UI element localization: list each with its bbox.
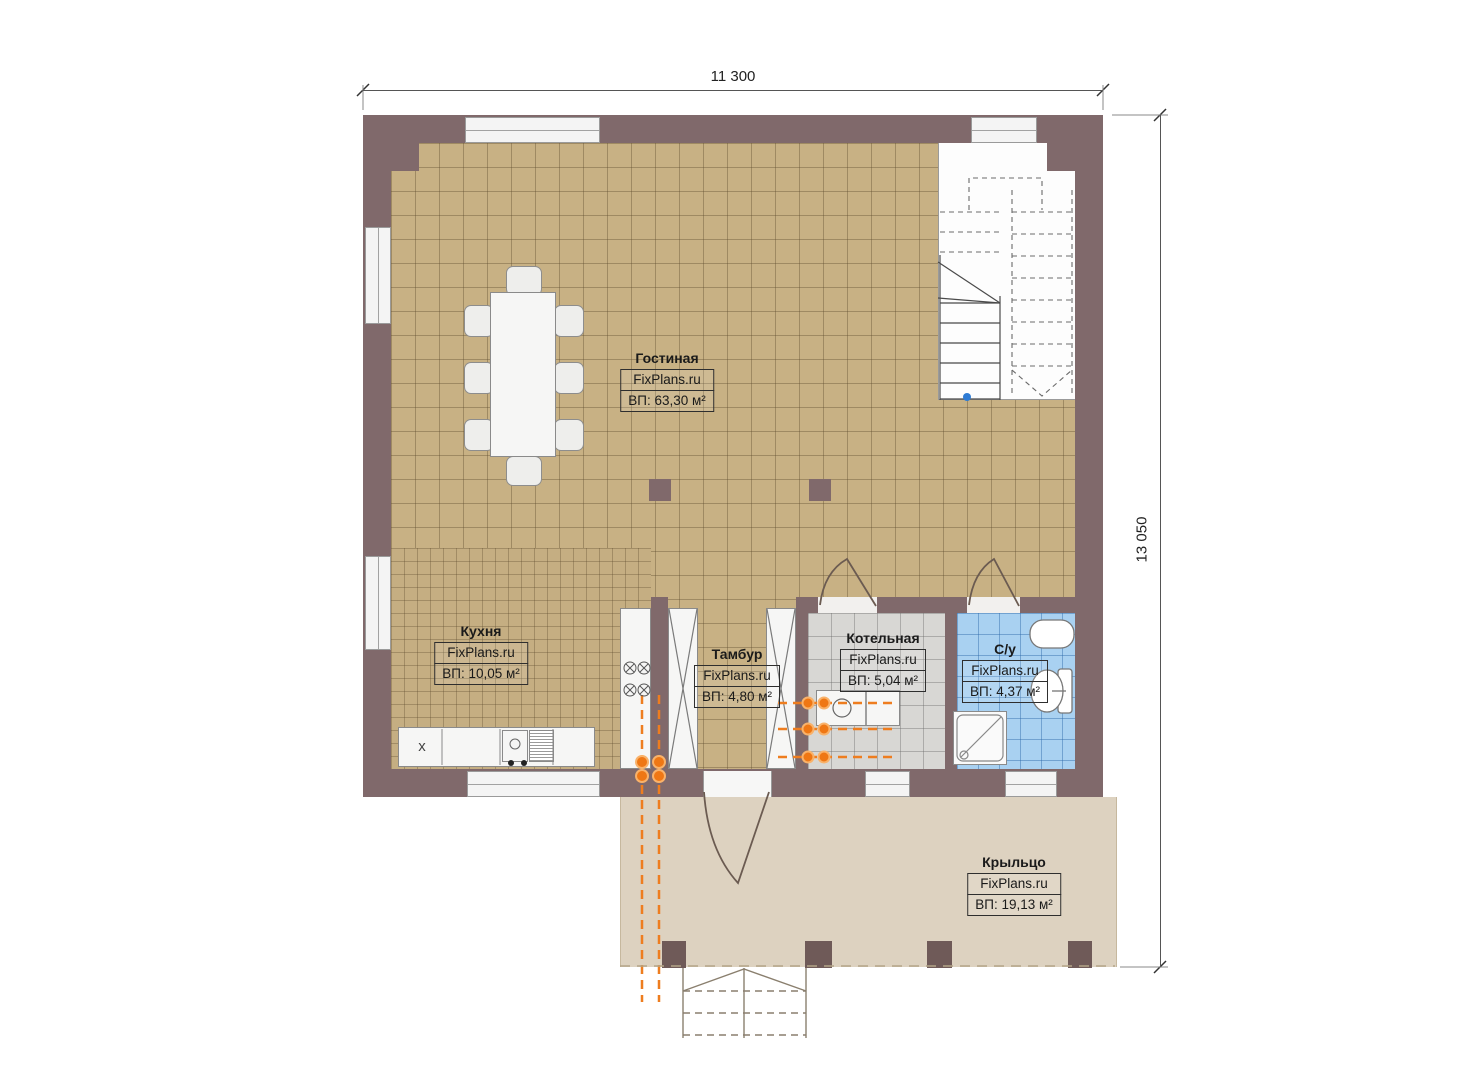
room-name: Котельная: [840, 630, 926, 646]
room-name: Тамбур: [694, 646, 780, 662]
window-top-living: [465, 117, 600, 143]
exterior-wall-right: [1075, 115, 1103, 797]
watermark-label: FixPlans.ru: [967, 873, 1061, 895]
room-info-box: FixPlans.ru ВП: 4,37 м²: [962, 660, 1048, 703]
kitchen-sink-cabinet: [502, 730, 528, 762]
dimension-width-label: 11 300: [363, 68, 1103, 85]
room-name: Кухня: [434, 623, 528, 639]
window-bottom-boiler: [865, 771, 910, 797]
room-name: Гостиная: [620, 350, 714, 366]
room-area-label: ВП: 10,05 м²: [434, 663, 528, 685]
watermark-label: FixPlans.ru: [434, 642, 528, 664]
staircase-area: [938, 143, 1075, 400]
watermark-label: FixPlans.ru: [840, 649, 926, 671]
porch-column: [805, 941, 832, 968]
window-bottom-bathroom: [1005, 771, 1057, 797]
watermark-label: FixPlans.ru: [694, 665, 780, 687]
boiler-door-opening: [818, 597, 877, 613]
watermark-label: FixPlans.ru: [620, 369, 714, 391]
room-label-living: Гостиная FixPlans.ru ВП: 63,30 м²: [620, 350, 714, 412]
interior-wall-tambour-boiler: [796, 597, 808, 769]
entrance-door-opening: [703, 771, 772, 797]
room-info-box: FixPlans.ru ВП: 63,30 м²: [620, 369, 714, 412]
kitchen-appliance-x-marker: x: [402, 733, 442, 761]
structural-column: [649, 479, 671, 501]
room-area-label: ВП: 19,13 м²: [967, 894, 1061, 916]
window-left-upper: [365, 227, 391, 324]
room-label-tambour: Тамбур FixPlans.ru ВП: 4,80 м²: [694, 646, 780, 708]
corner-pilaster: [1047, 143, 1075, 171]
room-area-label: ВП: 63,30 м²: [620, 390, 714, 412]
dish-rack: [529, 730, 554, 762]
structural-column: [809, 479, 831, 501]
room-area-label: ВП: 4,37 м²: [962, 681, 1048, 703]
room-label-boiler: Котельная FixPlans.ru ВП: 5,04 м²: [840, 630, 926, 692]
room-label-kitchen: Кухня FixPlans.ru ВП: 10,05 м²: [434, 623, 528, 685]
room-info-box: FixPlans.ru ВП: 5,04 м²: [840, 649, 926, 692]
window-bottom-kitchen: [467, 771, 600, 797]
dining-table: [490, 292, 556, 457]
shower-tray: [953, 711, 1007, 765]
chair: [554, 419, 584, 451]
window-top-stairs: [971, 117, 1037, 143]
interior-wall-kitchen-tambour: [651, 597, 668, 769]
boiler-unit: [816, 690, 900, 726]
floor-plan-canvas: x: [0, 0, 1474, 1080]
corner-pilaster: [391, 143, 419, 171]
porch-column: [927, 941, 952, 968]
room-label-porch: Крыльцо FixPlans.ru ВП: 19,13 м²: [967, 854, 1061, 916]
room-area-label: ВП: 5,04 м²: [840, 670, 926, 692]
room-area-label: ВП: 4,80 м²: [694, 686, 780, 708]
porch-steps: [683, 968, 806, 1038]
chair: [554, 305, 584, 337]
watermark-label: FixPlans.ru: [962, 660, 1048, 682]
dimension-line-top: [363, 90, 1103, 91]
room-name: Крыльцо: [967, 854, 1061, 870]
room-info-box: FixPlans.ru ВП: 4,80 м²: [694, 665, 780, 708]
porch-column: [1068, 941, 1092, 968]
dimension-height-label: 13 050: [1134, 500, 1151, 580]
exterior-wall-left: [363, 115, 391, 797]
porch-column: [662, 941, 686, 968]
dimension-line-right: [1160, 115, 1161, 967]
room-label-bathroom: С/у FixPlans.ru ВП: 4,37 м²: [962, 641, 1048, 703]
room-name: С/у: [962, 641, 1048, 657]
chair: [506, 456, 542, 486]
bathroom-door-opening: [967, 597, 1020, 613]
room-info-box: FixPlans.ru ВП: 10,05 м²: [434, 642, 528, 685]
chair: [554, 362, 584, 394]
room-info-box: FixPlans.ru ВП: 19,13 м²: [967, 873, 1061, 916]
kitchen-counter-vertical: [620, 608, 651, 769]
window-left-lower: [365, 556, 391, 650]
